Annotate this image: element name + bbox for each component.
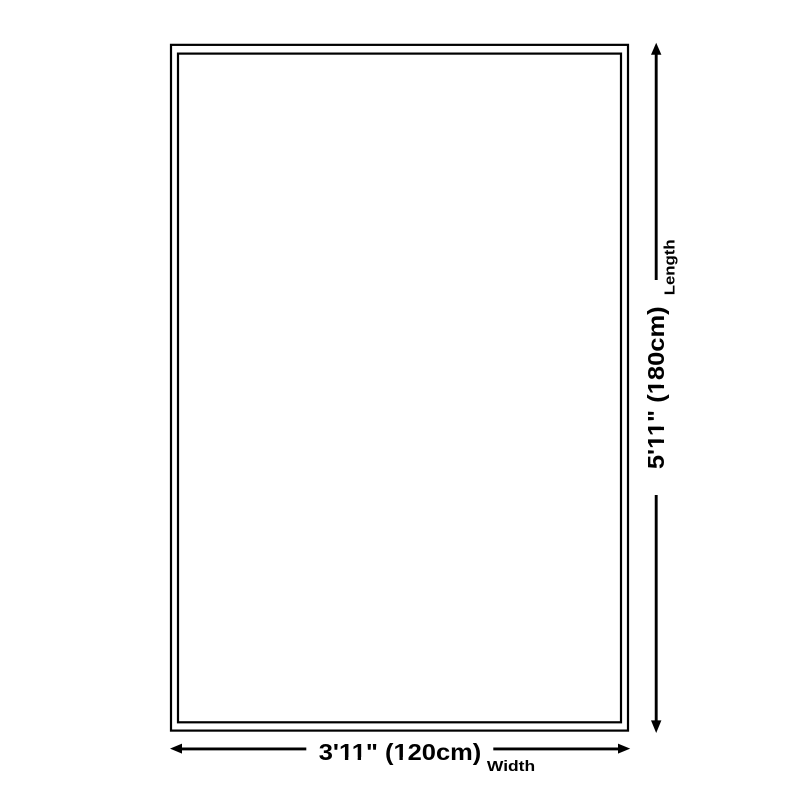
svg-text:5'11" (180cm): 5'11" (180cm) xyxy=(644,306,670,469)
svg-text:3'11" (120cm): 3'11" (120cm) xyxy=(319,740,481,766)
svg-text:Width: Width xyxy=(487,758,535,775)
svg-text:Length: Length xyxy=(662,239,678,295)
